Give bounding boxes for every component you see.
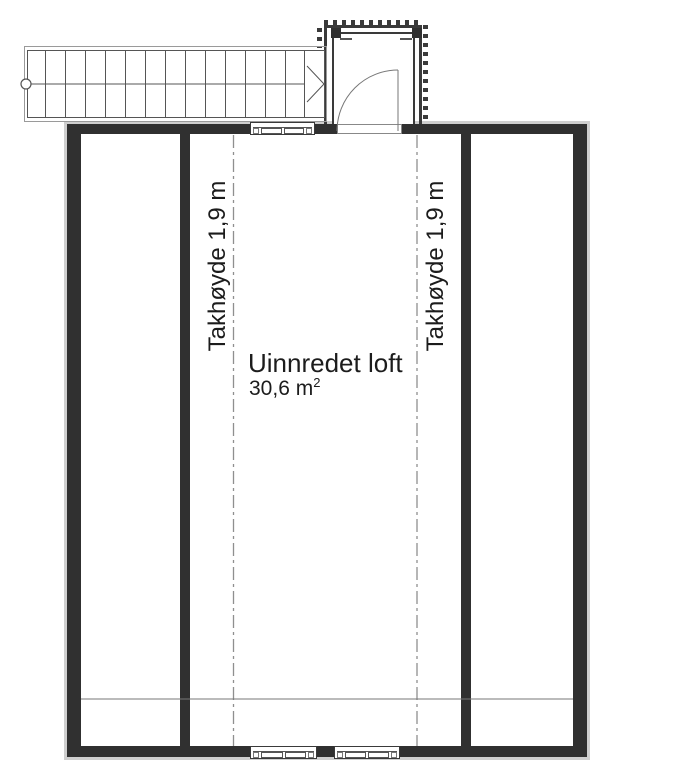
exterior-wall-bottom-left-segment (67, 746, 250, 757)
exterior-wall-left (67, 124, 81, 757)
area-exponent: 2 (313, 375, 320, 390)
door-opening-threshold (337, 124, 402, 134)
exterior-wall-top-pier (315, 124, 337, 134)
vestibule-hatch-right (423, 25, 428, 123)
window-bottom-left (250, 746, 317, 759)
exterior-wall-bottom-right-segment (400, 746, 587, 757)
stair-treads (45, 50, 305, 118)
exterior-wall-top-right-segment (402, 124, 587, 134)
vestibule-corner-post-right (412, 28, 422, 38)
exterior-wall-right (573, 124, 587, 757)
vestibule-corner-post-left (331, 28, 341, 38)
vestibule-hatch-left (317, 28, 322, 48)
ceiling-height-label-right: Takhøyde 1,9 m (424, 176, 448, 356)
window-sashes (253, 751, 314, 758)
floor-plan: Uinnredet loft 30,6 m2 Takhøyde 1,9 m Ta… (0, 0, 680, 780)
ceiling-height-label-left: Takhøyde 1,9 m (206, 176, 230, 356)
exterior-wall-shadow (64, 121, 590, 760)
window-top (250, 122, 315, 135)
vestibule-wall-tick-right (400, 38, 412, 40)
window-bottom-right (334, 746, 400, 759)
exterior-wall-bottom-pier (317, 746, 334, 757)
window-sashes (337, 751, 397, 758)
vestibule-wall-tick-left (340, 38, 352, 40)
window-sashes (253, 127, 312, 134)
vestibule-inner-wall (332, 32, 415, 124)
interior-wall-right (461, 134, 471, 746)
exterior-wall-top-left-segment (67, 124, 250, 134)
interior-wall-left (180, 134, 190, 746)
room-area-label: 30,6 m2 (249, 375, 320, 401)
